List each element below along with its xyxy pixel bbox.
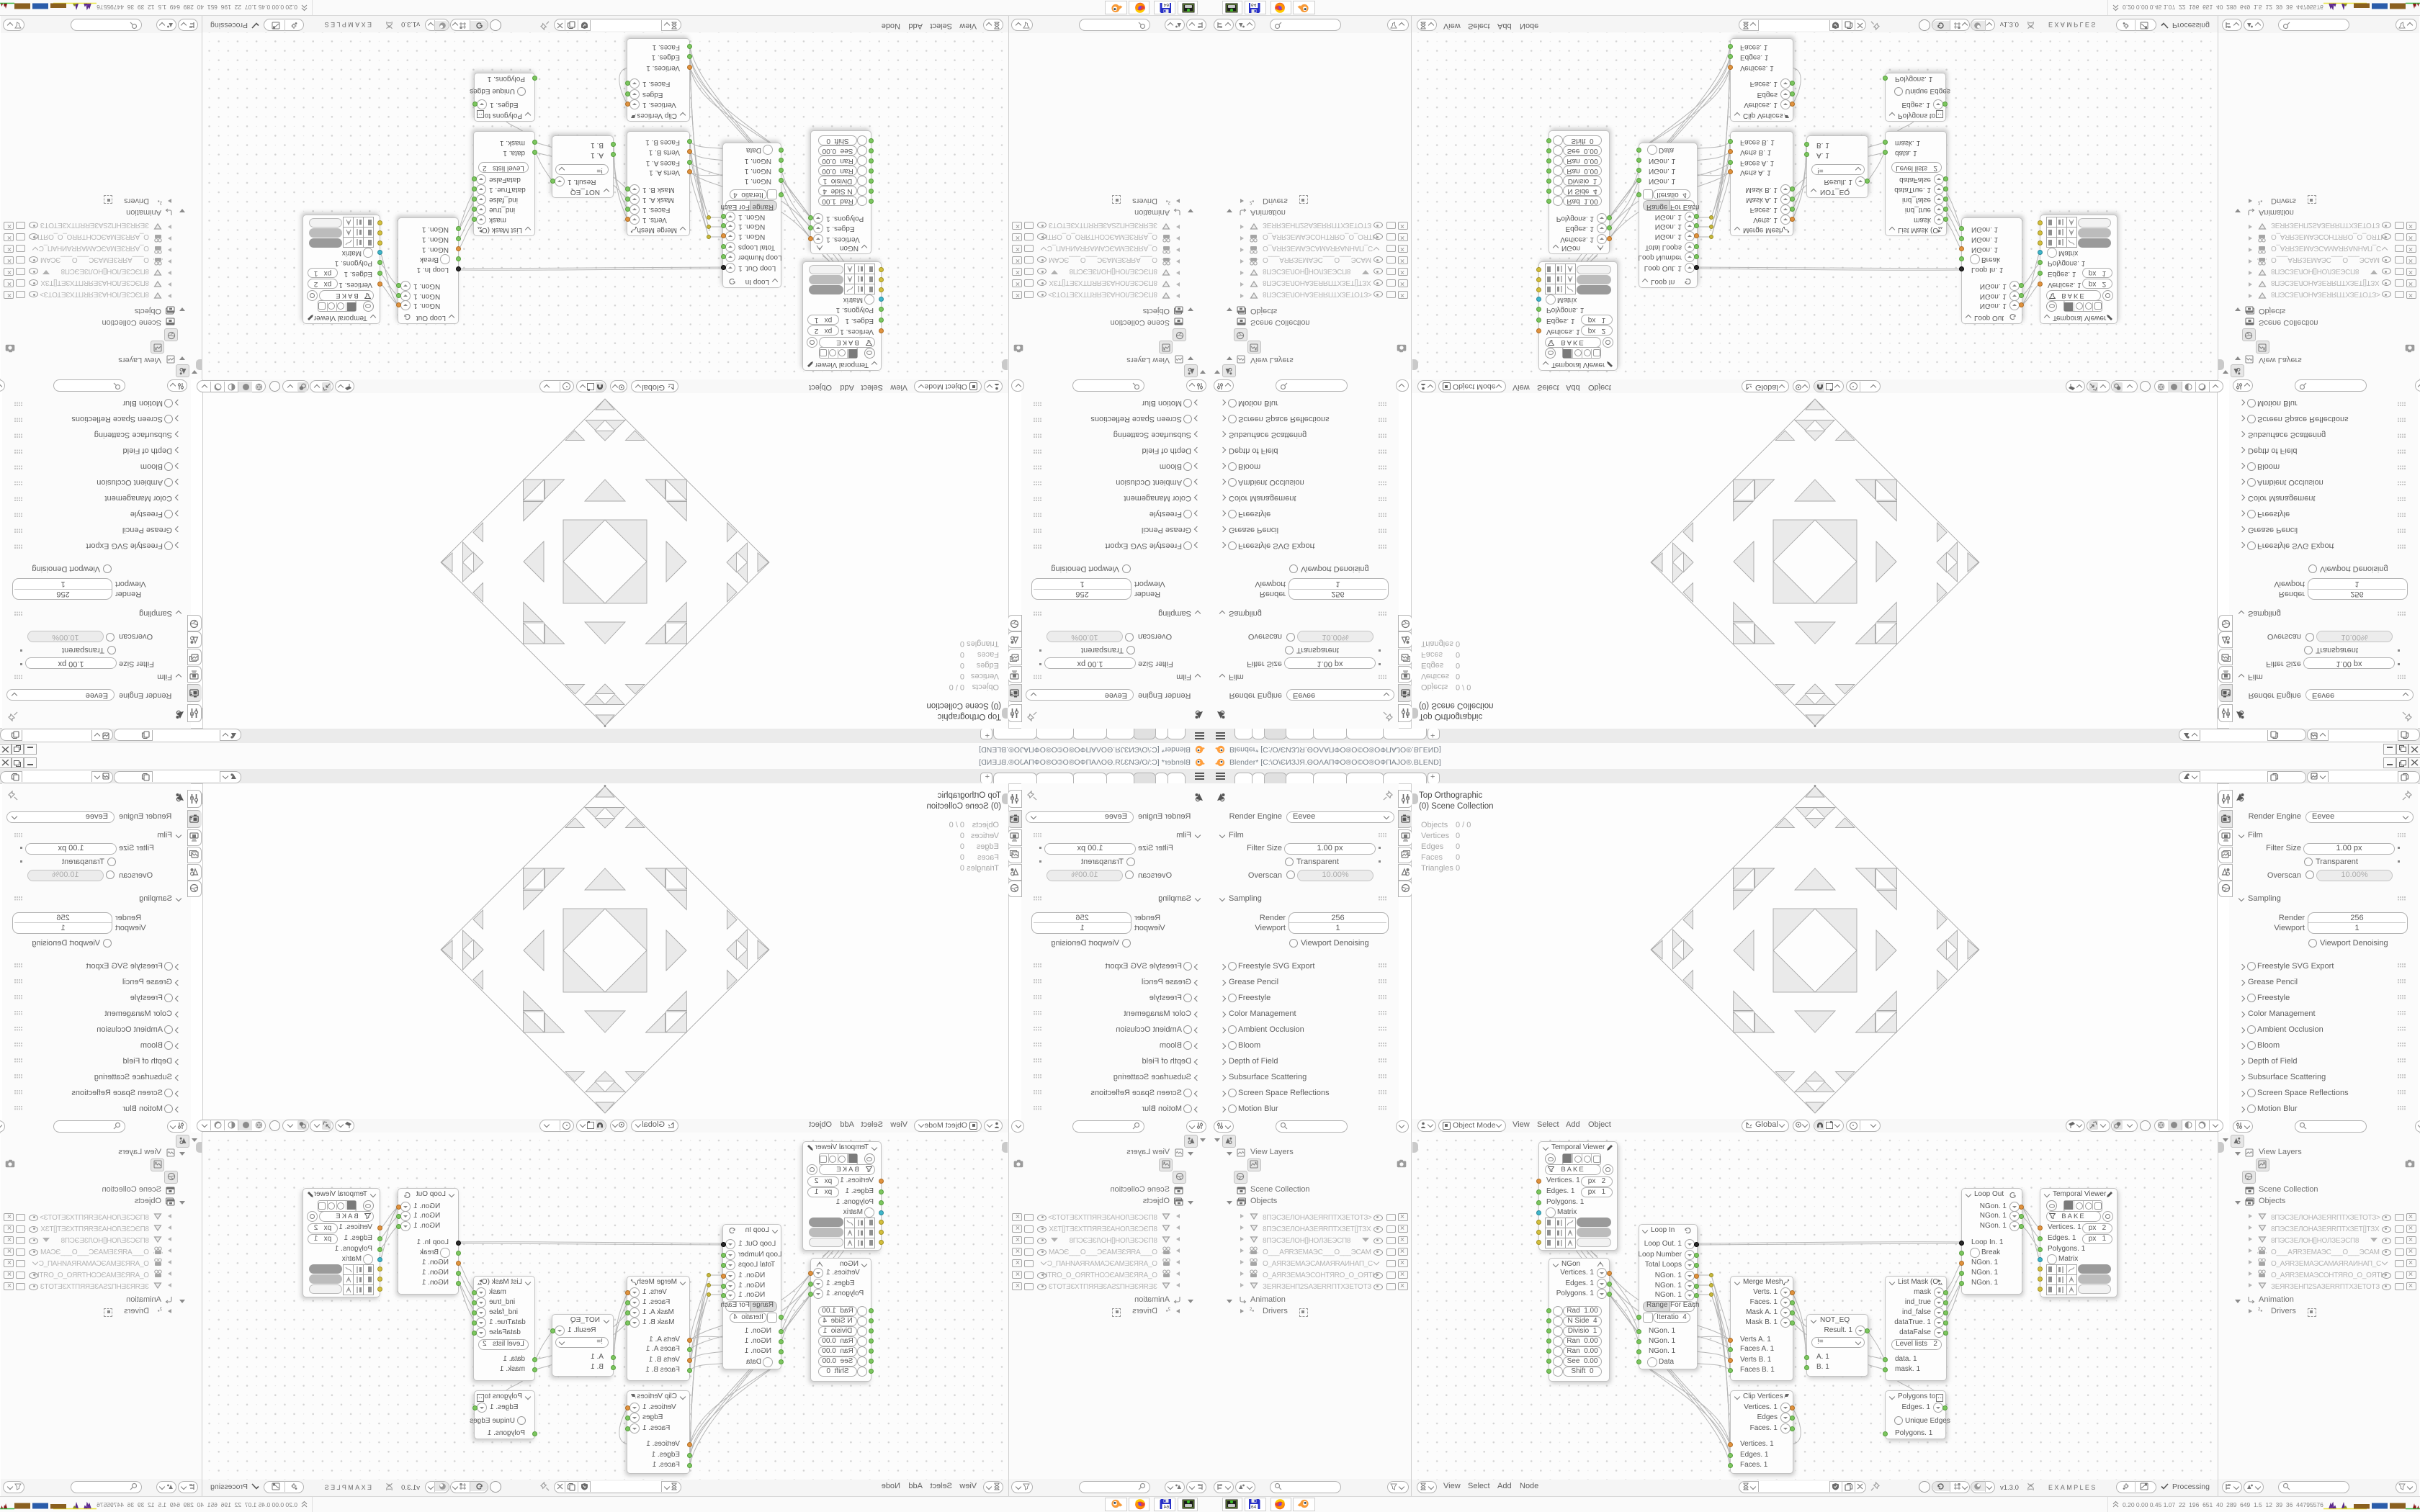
svg-text:64: 64 — [1163, 1505, 1169, 1510]
svg-text:64: 64 — [1163, 2, 1169, 7]
svg-text:64: 64 — [1251, 1505, 1257, 1510]
svg-text:64: 64 — [1251, 2, 1257, 7]
